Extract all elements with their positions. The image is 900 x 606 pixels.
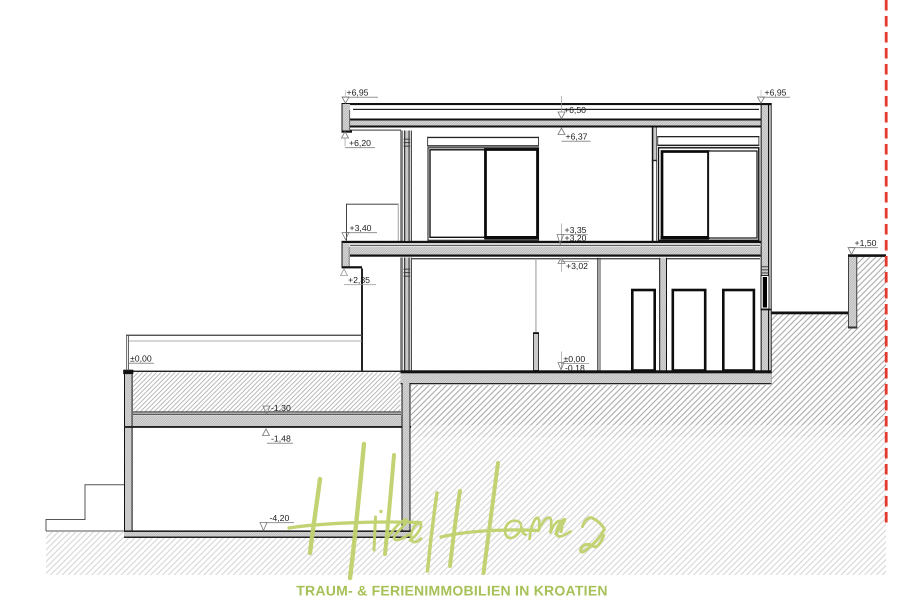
svg-text:+6,37: +6,37 — [566, 132, 588, 142]
svg-text:+3,20: +3,20 — [565, 233, 587, 243]
svg-text:-1,48: -1,48 — [271, 434, 291, 444]
svg-text:+3,40: +3,40 — [350, 223, 372, 233]
svg-text:+6,50: +6,50 — [564, 105, 586, 115]
svg-text:+6,20: +6,20 — [349, 138, 371, 148]
svg-text:TRAUM- & FERIENIMMOBILIEN IN K: TRAUM- & FERIENIMMOBILIEN IN KROATIEN — [296, 583, 608, 599]
svg-text:+6,95: +6,95 — [347, 88, 369, 98]
svg-text:±0,00: ±0,00 — [130, 354, 152, 364]
svg-text:+3,02: +3,02 — [566, 261, 588, 271]
svg-text:+2,85: +2,85 — [348, 275, 370, 285]
svg-text:-0,18: -0,18 — [565, 363, 585, 373]
svg-text:+6,95: +6,95 — [765, 88, 787, 98]
svg-text:-4,20: -4,20 — [270, 513, 290, 523]
svg-text:-1,30: -1,30 — [271, 403, 291, 413]
svg-text:+1,50: +1,50 — [855, 238, 877, 248]
